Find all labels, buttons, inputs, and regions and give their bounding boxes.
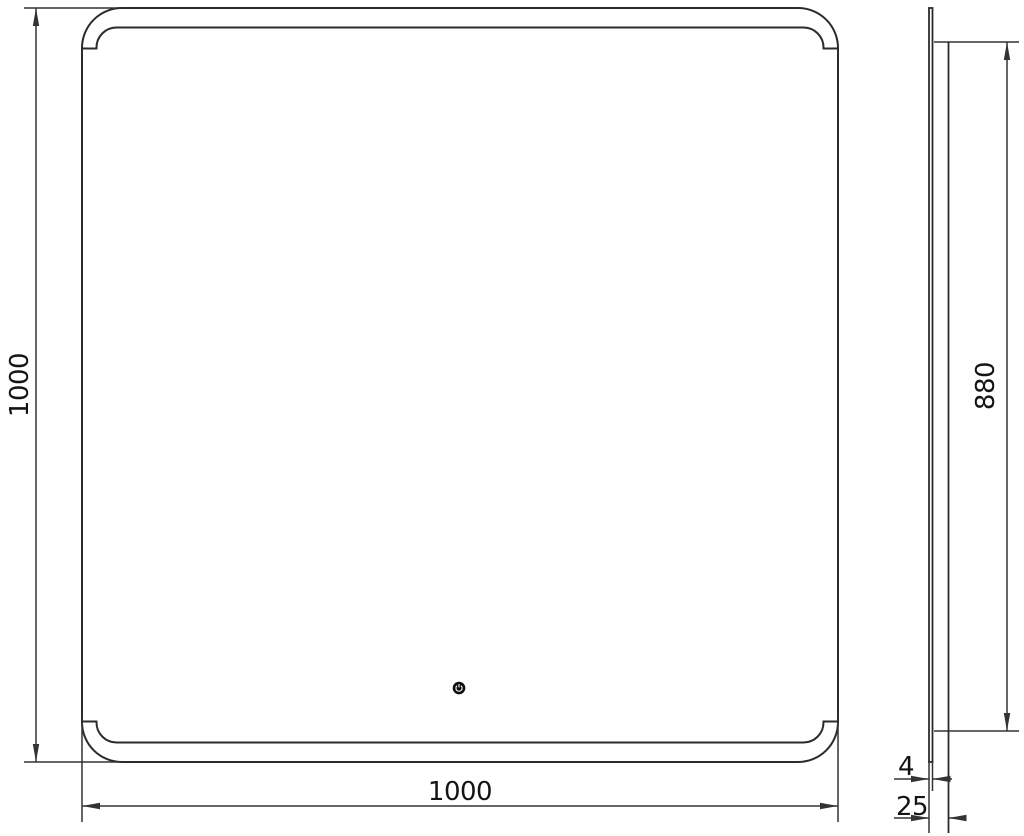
mirror-technical-drawing: 1000 1000 880 4 25	[0, 0, 1024, 836]
arrow-width-right	[820, 803, 838, 809]
arrow-width-left	[82, 803, 100, 809]
mirror-front-view	[82, 8, 838, 762]
led-band-top	[82, 28, 838, 49]
mirror-outline	[82, 8, 838, 762]
dimension-arrows	[33, 8, 1010, 821]
width-dim-label: 1000	[428, 777, 492, 807]
arrow-height-bottom	[33, 744, 39, 762]
dimension-labels: 1000 1000 880 4 25	[5, 353, 1001, 822]
arrow-height-top	[33, 8, 39, 26]
arrow-glass-right	[933, 776, 951, 782]
arrow-backlight-bottom	[1004, 713, 1010, 731]
arrow-depth-right	[949, 815, 967, 821]
technical-drawing-page: 1000 1000 880 4 25	[0, 0, 1024, 836]
arrow-backlight-top	[1004, 42, 1010, 60]
power-touch-icon	[453, 682, 466, 695]
touch-sensor-button	[453, 682, 466, 695]
led-band-bottom	[82, 722, 838, 743]
depth-dim-label: 25	[896, 792, 928, 822]
glass-thickness-dim-label: 4	[898, 752, 914, 782]
backlight-height-dim-label: 880	[971, 362, 1001, 410]
dimension-lines	[24, 8, 1019, 833]
height-dim-label: 1000	[5, 353, 35, 417]
side-view-glass	[929, 8, 933, 762]
mirror-side-view	[929, 8, 949, 833]
